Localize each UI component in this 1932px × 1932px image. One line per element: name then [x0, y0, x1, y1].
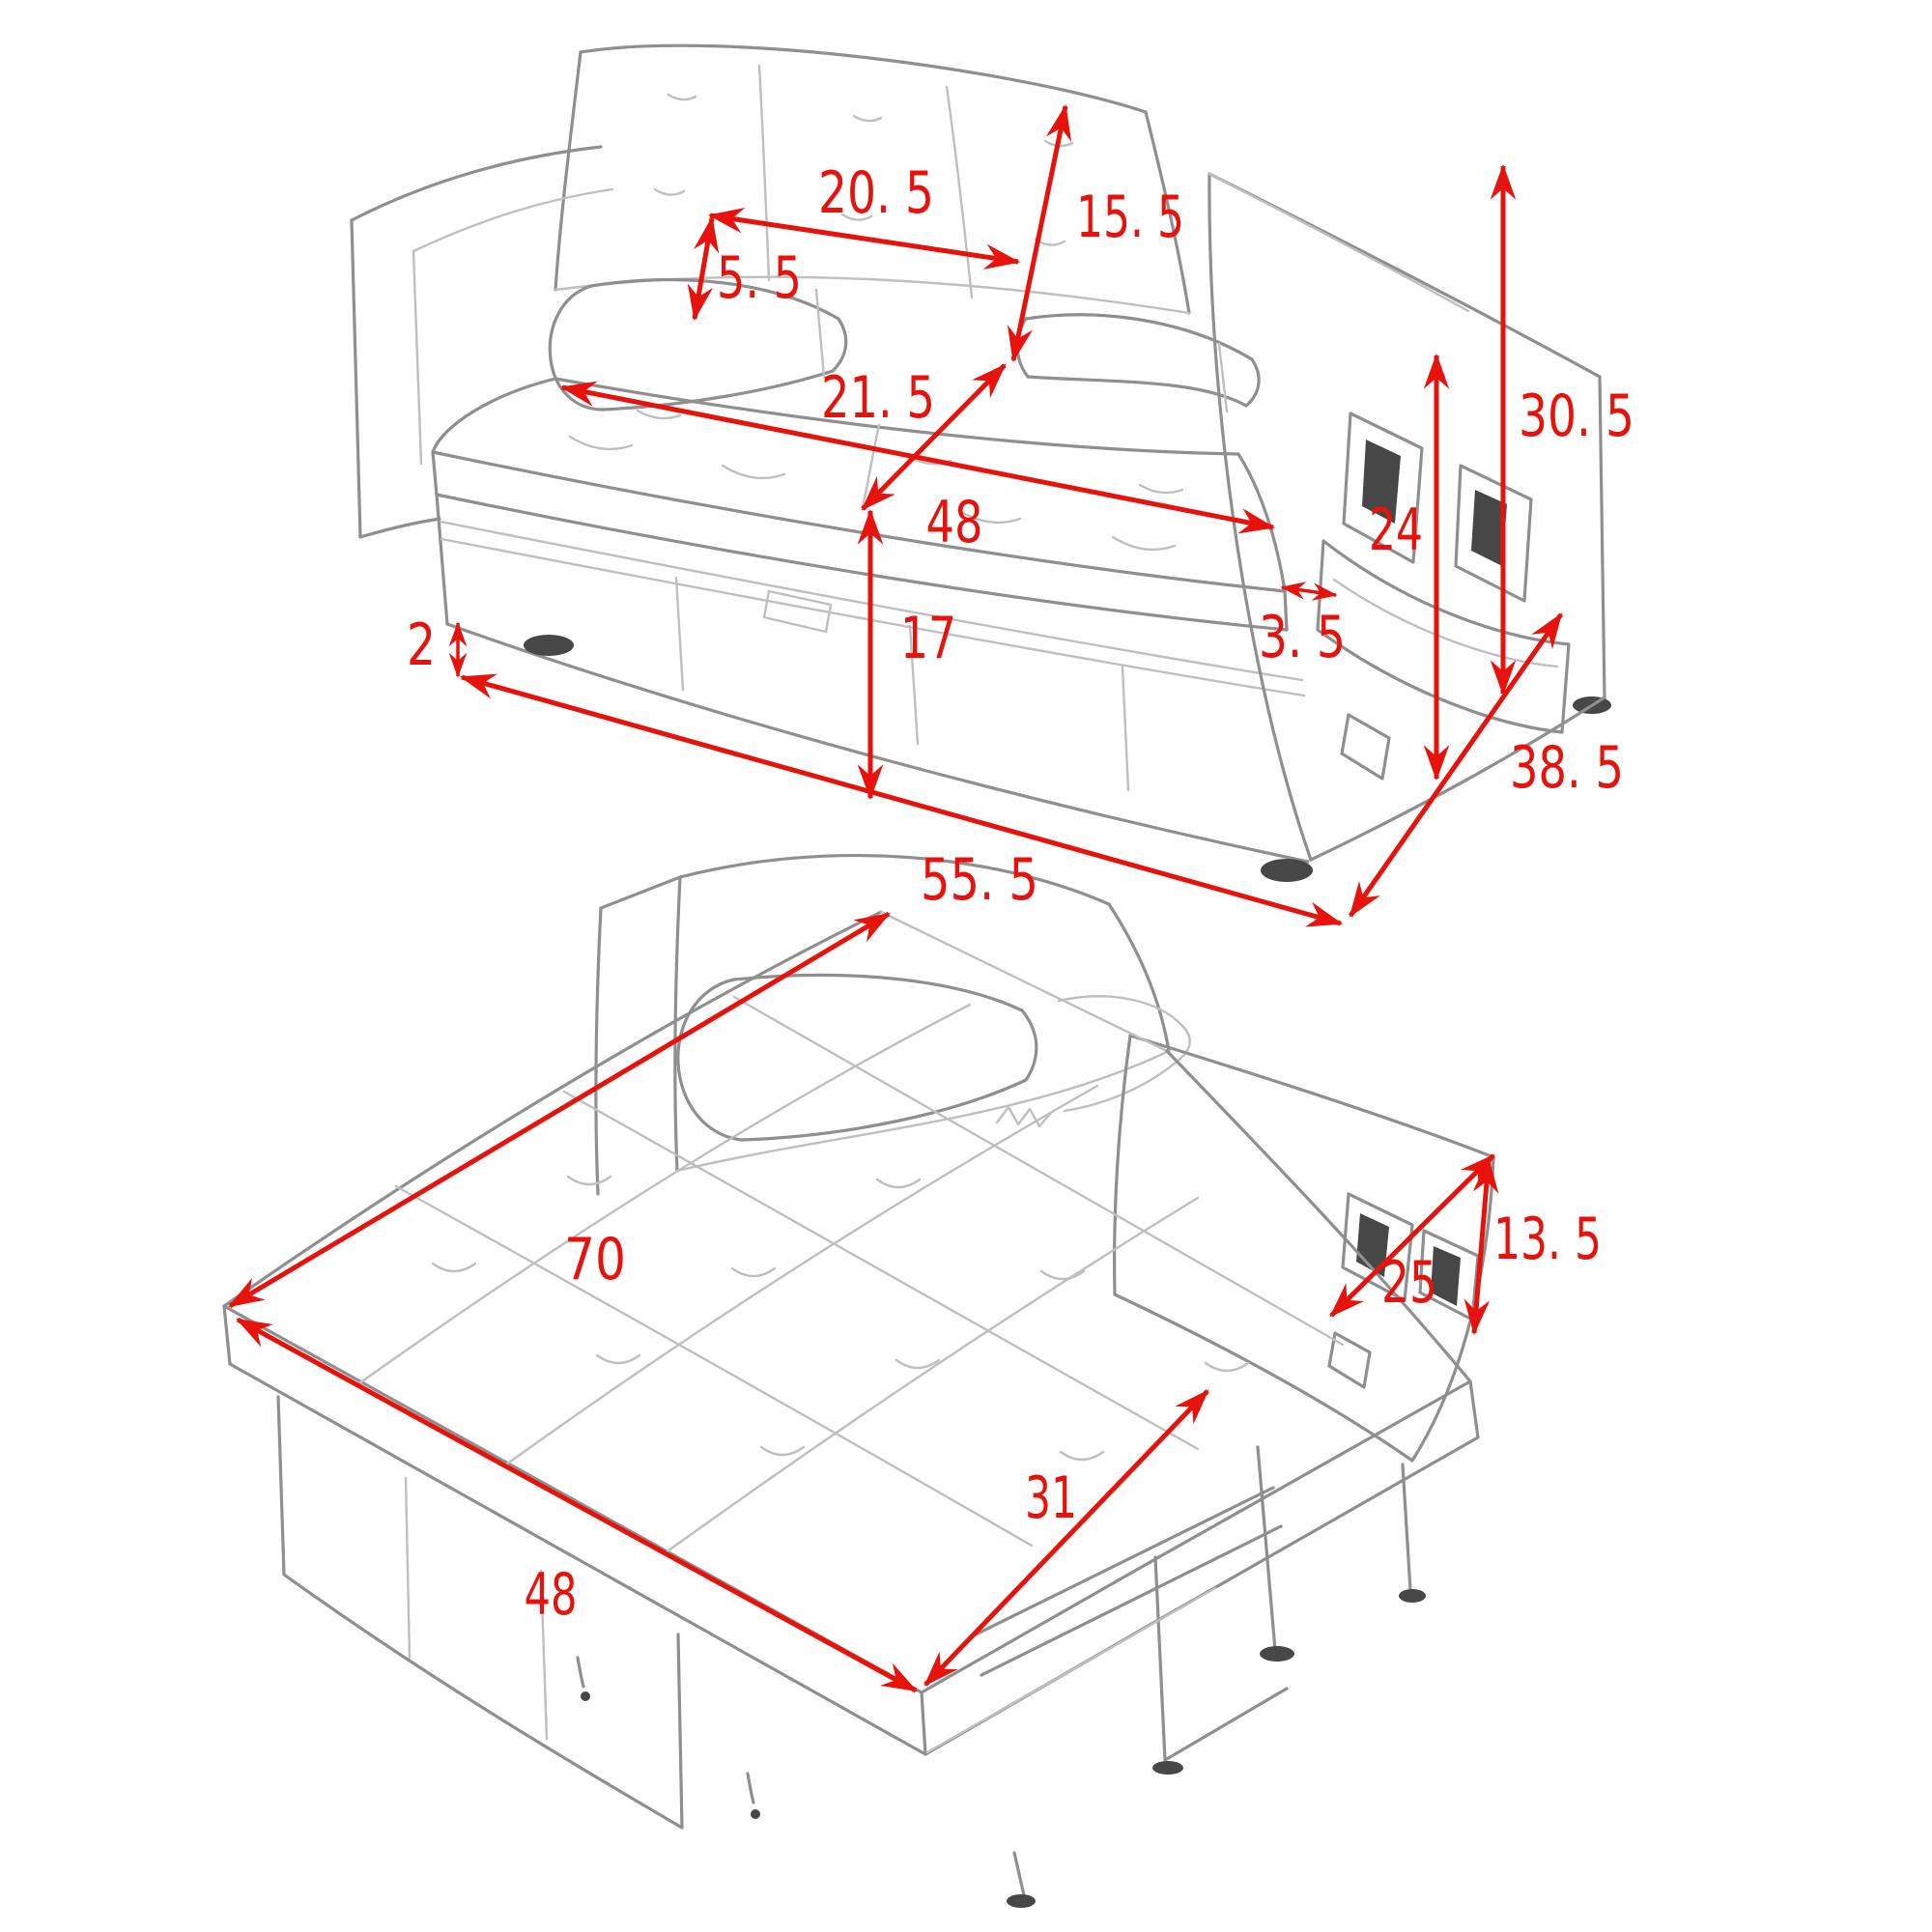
- page: { "style": { "background": "#ffffff", "d…: [0, 0, 1932, 1932]
- dimension-48: 48: [238, 1320, 916, 1690]
- sofa-dimension-annotations: 20. 55. 515. 521. 54817255. 53. 52430. 5…: [407, 106, 1634, 923]
- dimension-label: 30. 5: [1519, 383, 1634, 450]
- dimension-label: 20. 5: [818, 159, 934, 227]
- dimension-5-5: 5. 5: [695, 218, 802, 319]
- dimension-2: 2: [407, 611, 458, 679]
- bed-sketch: [224, 856, 1493, 1908]
- dimension-arrow: [1013, 106, 1065, 360]
- dimension-arrow: [238, 1320, 916, 1690]
- dimension-label: 2: [407, 611, 436, 679]
- sofa-dimension-diagram: 20. 55. 515. 521. 54817255. 53. 52430. 5…: [0, 0, 1932, 1932]
- dimension-label: 21. 5: [821, 364, 935, 432]
- dimension-arrow: [1282, 587, 1336, 595]
- dimension-label: 38. 5: [1510, 734, 1624, 802]
- dimension-25: 25: [1331, 1155, 1493, 1317]
- bed-dimension-annotations: 7048312513. 5: [230, 914, 1602, 1690]
- dimension-arrow: [462, 677, 1341, 923]
- dimension-arrow: [925, 1391, 1207, 1685]
- dimension-label: 15. 5: [1076, 184, 1184, 251]
- dimension-label: 48: [525, 1561, 578, 1629]
- dimension-label: 13. 5: [1493, 1206, 1602, 1273]
- dimension-30-5: 30. 5: [1503, 166, 1634, 694]
- dimension-31: 31: [925, 1391, 1207, 1685]
- dimension-38-5: 38. 5: [1350, 614, 1624, 916]
- dimension-label: 3. 5: [1259, 604, 1346, 671]
- dimension-label: 25: [1381, 1249, 1437, 1317]
- dimension-label: 55. 5: [921, 846, 1038, 914]
- dimension-label: 70: [564, 1226, 626, 1293]
- dimension-label: 24: [1369, 497, 1423, 564]
- dimension-3-5: 3. 5: [1259, 587, 1346, 671]
- dimension-label: 5. 5: [717, 244, 802, 312]
- dimension-55-5: 55. 5: [462, 677, 1341, 923]
- dimension-label: 31: [1025, 1464, 1077, 1532]
- dimension-label: 17: [900, 605, 956, 672]
- dimension-24: 24: [1369, 355, 1436, 779]
- sofa-sketch: [352, 45, 1611, 882]
- dimension-label: 48: [926, 489, 983, 556]
- dimension-arrow: [695, 218, 712, 319]
